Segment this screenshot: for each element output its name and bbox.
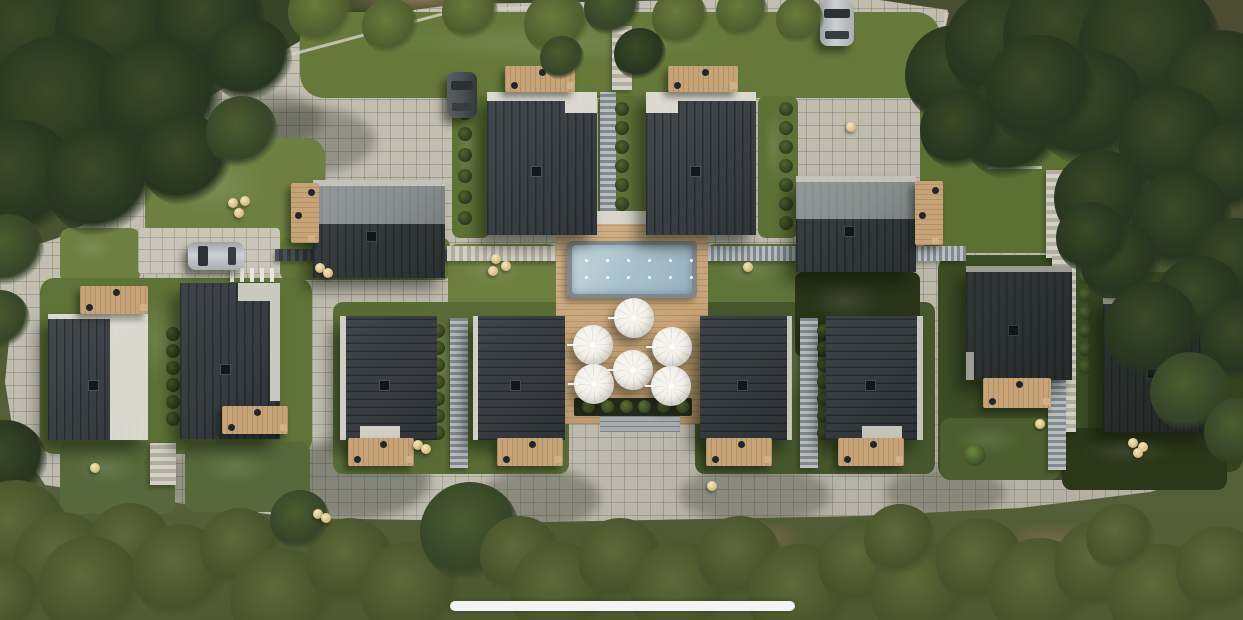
hedge-bush (779, 121, 793, 135)
terrace-furniture (529, 441, 536, 448)
car-windshield (451, 81, 473, 90)
house-roof (796, 176, 916, 272)
canopy-shade (796, 176, 916, 272)
hedge-bush (458, 127, 472, 141)
terrace-furniture (308, 235, 315, 242)
tree-shadow (680, 465, 830, 525)
terrace-furniture (354, 456, 361, 463)
terrace-furniture (702, 69, 709, 76)
terrace-furniture (712, 456, 719, 463)
house-roof (473, 316, 565, 440)
hedge-bush (458, 148, 472, 162)
roof-vent (690, 166, 701, 177)
tree-canopy (45, 127, 155, 237)
car-windshield (198, 246, 208, 266)
terrace-furniture (228, 424, 235, 431)
house-roof (966, 266, 1072, 380)
umbrella-arm (608, 317, 618, 319)
terrace-deck (497, 438, 563, 466)
tree-canopy (540, 36, 584, 80)
pool-water (572, 245, 692, 294)
patio-umbrella (652, 327, 692, 367)
hedge-bush (1078, 342, 1092, 356)
terrace-furniture (1016, 381, 1023, 388)
hedge-bush (615, 159, 629, 173)
garden-lamp (1128, 438, 1138, 448)
roof-trim (110, 314, 148, 440)
hedge-bush (458, 169, 472, 183)
hedge-bush (1078, 288, 1092, 302)
tree-canopy (920, 90, 1000, 170)
terrace-furniture (674, 82, 681, 89)
canopy-shade (966, 266, 1072, 380)
hedge-bush (779, 178, 793, 192)
hedge-bush (779, 140, 793, 154)
car-rear-window (825, 31, 849, 39)
house-roof (700, 316, 792, 440)
hedge-bush (166, 395, 180, 409)
car (188, 242, 244, 270)
terrace-furniture (113, 289, 120, 296)
hedge-bush (779, 197, 793, 211)
garden-lamp (707, 481, 717, 491)
pool-light-dot (669, 276, 672, 279)
garden-lamp (234, 208, 244, 218)
terrace-furniture (140, 304, 147, 311)
canopy-shade (313, 180, 445, 278)
terrace-furniture (555, 456, 562, 463)
canopy-shade (700, 316, 792, 440)
terrace-furniture (1043, 398, 1050, 405)
terrace-deck (668, 66, 738, 92)
hedge-bush (615, 121, 629, 135)
umbrella-arm (567, 344, 577, 346)
car-rear-window (452, 103, 472, 111)
house-roof (340, 316, 437, 440)
terrace-deck (222, 406, 288, 434)
garden-lamp (323, 268, 333, 278)
patio-umbrella (651, 366, 691, 406)
hedge-bush (166, 361, 180, 375)
hedge-bush (779, 159, 793, 173)
roof-trim (646, 101, 678, 113)
terrace-furniture (380, 441, 387, 448)
terrace-furniture (764, 456, 771, 463)
pool-light-dot (606, 259, 609, 262)
pool-steps (600, 416, 680, 432)
pool-light-dot (648, 276, 651, 279)
house-roof (646, 92, 756, 235)
terrace-furniture (280, 424, 287, 431)
boardwalk-path (450, 318, 468, 468)
tree-canopy (614, 28, 666, 80)
patio-umbrella (573, 325, 613, 365)
home-indicator-bar[interactable] (450, 601, 795, 611)
planter-shrub (620, 400, 633, 413)
umbrella-arm (645, 385, 655, 387)
tree-canopy (864, 504, 936, 576)
patio-umbrella (574, 364, 614, 404)
terrace-furniture (503, 456, 510, 463)
terrace-furniture (730, 82, 737, 89)
hedge-bush (458, 190, 472, 204)
grass-patch (1062, 428, 1227, 490)
boardwalk-path (230, 268, 276, 282)
hedge-bush (615, 178, 629, 192)
house-roof (487, 92, 597, 235)
hedge-bush (615, 140, 629, 154)
garden-lamp (491, 254, 501, 264)
aerial-site-render (0, 0, 1243, 620)
pool-light-dot (648, 259, 651, 262)
terrace-furniture (308, 189, 315, 196)
terrace-furniture (86, 304, 93, 311)
tree-canopy (985, 35, 1095, 145)
car (820, 0, 854, 46)
canopy-shade (340, 316, 437, 440)
house-roof (826, 316, 923, 440)
garden-lamp (321, 513, 331, 523)
patio-umbrella (613, 350, 653, 390)
terrace-deck (915, 181, 943, 245)
canopy-shade (826, 316, 923, 440)
patio-umbrella (614, 298, 654, 338)
house-roof (48, 314, 148, 440)
terrace-furniture (989, 398, 996, 405)
umbrella-arm (646, 346, 656, 348)
terrace-furniture (870, 441, 877, 448)
boardwalk-path (800, 318, 818, 468)
terrace-furniture (738, 441, 745, 448)
garden-lamp (743, 262, 753, 272)
terrace-deck (348, 438, 414, 466)
terrace-furniture (406, 456, 413, 463)
terrace-furniture (295, 212, 302, 219)
pool-light-dot (585, 259, 588, 262)
hedge-bush (779, 216, 793, 230)
roof-trim (646, 92, 756, 101)
tree-canopy (206, 96, 278, 168)
hedge-bush (166, 412, 180, 426)
garden-lamp (488, 266, 498, 276)
hedge-bush (166, 327, 180, 341)
terrace-deck (291, 183, 319, 243)
roof-vent (88, 380, 99, 391)
terrace-deck (80, 286, 148, 314)
terrace-deck (983, 378, 1051, 408)
terrace-deck (838, 438, 904, 466)
boardwalk-path (150, 443, 176, 485)
roof-trim (565, 101, 597, 113)
hedge-bush (166, 378, 180, 392)
hedge-bush (1078, 360, 1092, 374)
garden-lamp (90, 463, 100, 473)
pool-light-dot (690, 276, 693, 279)
garden-lamp (1133, 448, 1143, 458)
pool-light-dot (606, 276, 609, 279)
hedge-bush (458, 211, 472, 225)
pool-light-dot (669, 259, 672, 262)
hedge-bush (166, 344, 180, 358)
garden-lamp (846, 122, 856, 132)
terrace-furniture (919, 212, 926, 219)
terrace-furniture (567, 82, 574, 89)
terrace-furniture (254, 409, 261, 416)
tree-canopy (208, 18, 292, 102)
pool-light-dot (690, 259, 693, 262)
terrace-furniture (511, 82, 518, 89)
tree-canopy (362, 0, 418, 54)
garden-lamp (421, 444, 431, 454)
canopy-shade (473, 316, 565, 440)
pool-light-dot (627, 276, 630, 279)
tree-canopy (1056, 202, 1128, 274)
boardwalk-path (447, 246, 559, 261)
roof-trim (48, 314, 148, 319)
hedge-bush (779, 102, 793, 116)
pool-light-dot (627, 259, 630, 262)
umbrella-arm (568, 383, 578, 385)
pool-light-dot (585, 276, 588, 279)
garden-lamp (240, 196, 250, 206)
car-rear-window (228, 247, 236, 265)
garden-lamp (228, 198, 238, 208)
terrace-furniture (932, 237, 939, 244)
roof-vent (531, 166, 542, 177)
car (447, 72, 477, 118)
terrace-furniture (932, 187, 939, 194)
hedge-bush (1078, 324, 1092, 338)
garden-lamp (501, 261, 511, 271)
car-windshield (824, 9, 850, 18)
hedge-bush (615, 197, 629, 211)
hedge-bush (1078, 306, 1092, 320)
garden-lamp (1035, 419, 1045, 429)
shrub (964, 444, 986, 466)
terrace-furniture (896, 456, 903, 463)
terrace-deck (706, 438, 772, 466)
hedge-bush (615, 102, 629, 116)
terrace-furniture (844, 456, 851, 463)
house-roof (313, 180, 445, 278)
tree-canopy (1086, 504, 1154, 572)
roof-trim (487, 92, 597, 101)
